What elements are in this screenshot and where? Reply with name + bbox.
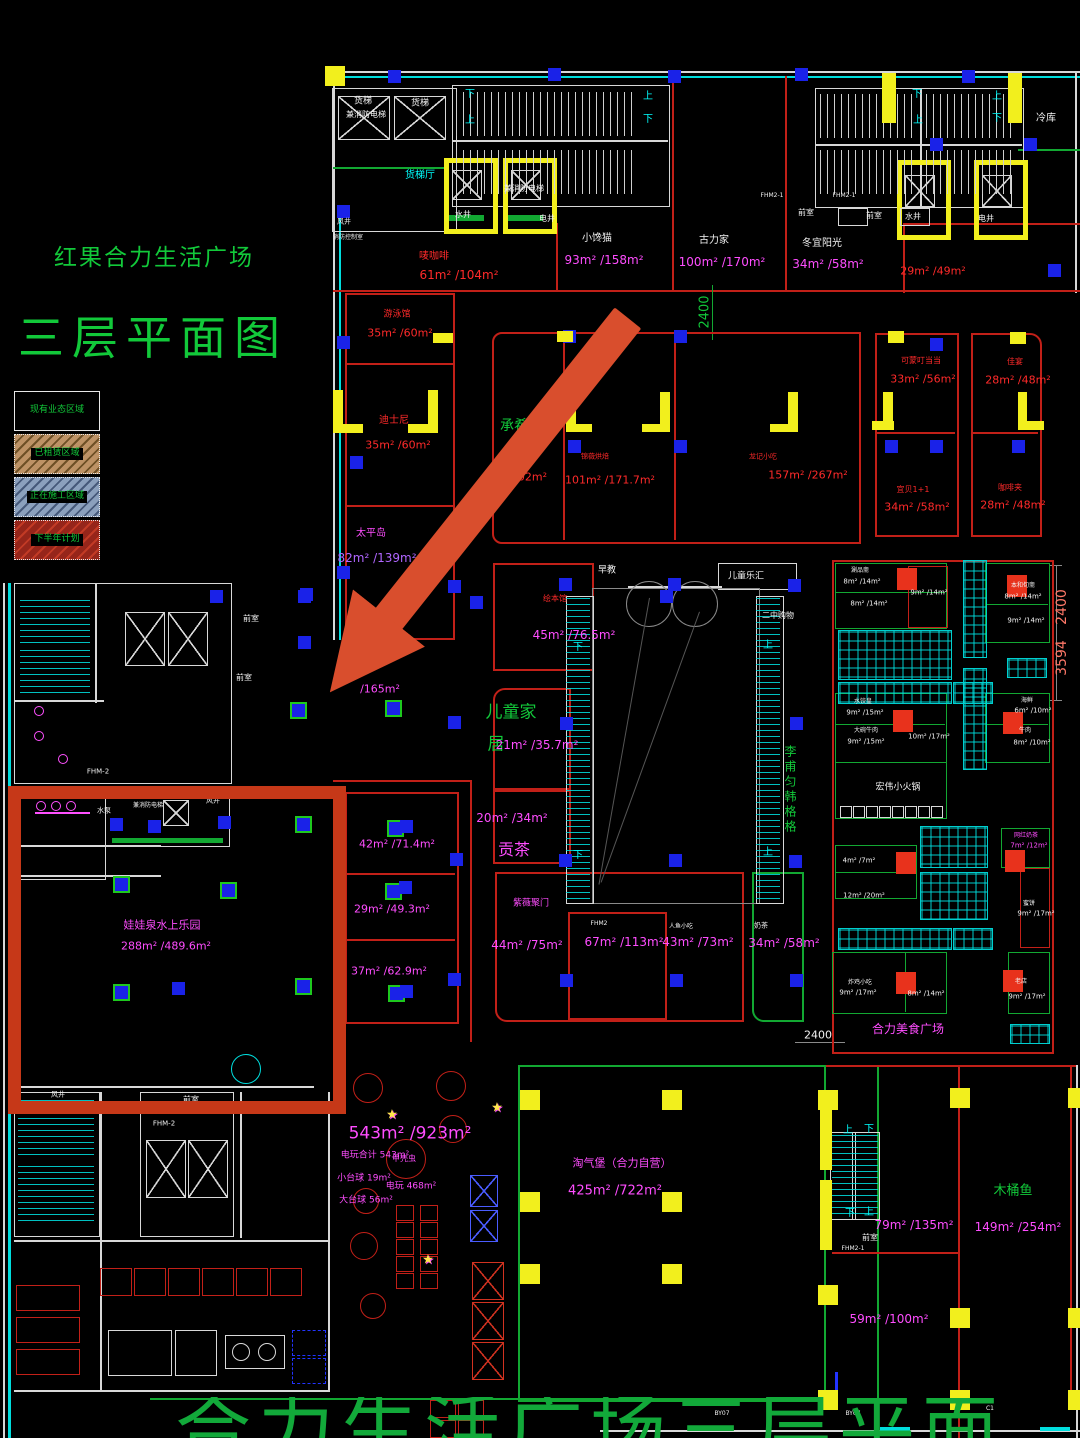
- plan-label: 李甫匀韩格格: [784, 745, 796, 835]
- dining-table-icon: [838, 928, 952, 950]
- plan-label: 太平岛: [356, 529, 386, 539]
- wall-highlight-bar: [642, 424, 670, 432]
- room-outline: [16, 1285, 80, 1311]
- plan-label: 29m² /49m²: [900, 266, 965, 277]
- plan-label: 425m² /722m²: [568, 1185, 662, 1198]
- stair-treads-icon: [926, 94, 1016, 138]
- wall-line: [345, 293, 455, 295]
- elevator-shaft-icon: [168, 612, 208, 666]
- wall-line: [345, 505, 455, 507]
- column-square-icon: [1068, 1088, 1080, 1108]
- wall-line: [1075, 73, 1077, 293]
- plan-label: FHM2: [591, 921, 608, 927]
- dining-table-icon: [920, 872, 988, 920]
- column-square-icon: [662, 1192, 682, 1212]
- column-circle-icon: [58, 754, 68, 764]
- plan-label: 101m² /171.7m²: [565, 475, 655, 486]
- room-outline: [918, 806, 930, 818]
- column-square-icon: [520, 1192, 540, 1212]
- plan-label: 下: [864, 1125, 874, 1135]
- column-square-icon: [950, 1088, 970, 1108]
- stall-counter-icon: [1005, 850, 1025, 872]
- plan-label: 10m² /17m²: [908, 734, 950, 741]
- stall-counter-icon: [893, 710, 913, 732]
- leg-planned-label: 下半年计划: [31, 534, 82, 546]
- plan-label: 游泳馆: [383, 311, 410, 320]
- plan-label: 老店: [1015, 979, 1027, 985]
- plan-label: 35m² /60m²: [365, 440, 430, 451]
- sprinkler-square-icon: [670, 974, 683, 987]
- star-icon: ★: [386, 1109, 398, 1122]
- plan-label: 8m² /14m²: [1004, 594, 1041, 601]
- room-outline: [840, 806, 852, 818]
- wall-highlight-bar: [566, 424, 592, 432]
- sprinkler-square-icon: [930, 138, 943, 151]
- stall-counter-icon: [897, 568, 917, 590]
- room-outline: [396, 1256, 414, 1272]
- plan-label: 12m² /20m²: [843, 893, 885, 900]
- sprinkler-square-icon: [337, 205, 350, 218]
- room-outline: [16, 1349, 80, 1375]
- room-outline: [396, 1222, 414, 1238]
- column-square-icon: [325, 66, 345, 86]
- plan-label: 上: [843, 1126, 853, 1136]
- room-outline: [420, 1205, 438, 1221]
- room-outline: [396, 1239, 414, 1255]
- plan-label: FHM2-1: [842, 1246, 865, 1252]
- room-outline: [879, 806, 891, 818]
- dining-table-icon: [838, 630, 952, 680]
- plan-label: 9m² /17m²: [839, 990, 876, 997]
- dining-table-icon: [953, 928, 993, 950]
- room-outline: [202, 1268, 234, 1296]
- room-outline: [100, 1268, 132, 1296]
- plan-label: 35m² /60m²: [367, 328, 432, 339]
- wall-line: [100, 1092, 102, 1392]
- leg-existing-label: 现有业态区域: [27, 405, 87, 417]
- project-title: 红果合力生活广场: [54, 238, 254, 272]
- plan-label: 本和旬斋: [1011, 583, 1035, 589]
- elevator-shaft-icon: [125, 612, 165, 666]
- plan-label: 8m² /14m²: [907, 991, 944, 998]
- room-outline: [853, 806, 865, 818]
- plan-label: 海鲜: [1021, 698, 1033, 704]
- plan-label: 蜜饼: [1023, 901, 1035, 907]
- sprinkler-square-icon: [788, 579, 801, 592]
- plan-label: 古力家: [699, 236, 729, 246]
- wall-line: [470, 780, 472, 1042]
- plan-label: 淘气堡（合力自营）: [573, 1158, 672, 1169]
- sprinkler-square-icon: [674, 440, 687, 453]
- plan-label: 93m² /158m²: [564, 254, 643, 266]
- room-outline: [175, 1330, 217, 1376]
- room-outline: [518, 1065, 826, 1402]
- plan-label: 45m² /76.5m²: [533, 629, 616, 641]
- plan-label: 前室: [243, 615, 259, 623]
- sprinkler-square-icon: [298, 590, 311, 603]
- plan-label: 水井: [905, 213, 921, 221]
- plan-label: 儿童乐汇: [728, 573, 764, 582]
- column-square-icon: [1068, 1308, 1080, 1328]
- sprinkler-square-icon: [795, 68, 808, 81]
- escalator-icon: [18, 1166, 94, 1224]
- sprinkler-square-icon: [337, 336, 350, 349]
- plan-label: 2400: [1055, 589, 1069, 625]
- plan-label: FHM2-1: [761, 193, 784, 199]
- wall-line: [672, 76, 674, 290]
- plan-label: 8m² /14m²: [843, 579, 880, 586]
- sprinkler-square-icon: [350, 456, 363, 469]
- stair-treads-icon: [456, 92, 636, 136]
- wall-line: [333, 780, 470, 782]
- plan-label: 货梯厅: [405, 171, 435, 181]
- room-outline: [16, 1317, 80, 1343]
- star-icon: ★: [491, 1102, 503, 1115]
- plan-label: 9m² /17m²: [1017, 911, 1054, 918]
- star-icon: ★: [422, 1254, 434, 1267]
- elevator-shaft-icon: [188, 1140, 228, 1198]
- room-outline: [892, 806, 904, 818]
- sprinkler-square-icon: [400, 985, 413, 998]
- leg-construction-swatch: 正在施工区域: [14, 477, 100, 517]
- sprinkler-square-icon: [210, 590, 223, 603]
- column-circle-icon: [258, 1343, 276, 1361]
- room-outline: [270, 1268, 302, 1296]
- plan-label: 奶茶: [754, 923, 768, 930]
- plan-label: 下: [465, 90, 475, 100]
- room-outline: [236, 1268, 268, 1296]
- sprinkler-square-icon: [388, 70, 401, 83]
- sprinkler-square-icon: [470, 596, 483, 609]
- wall-highlight-bar: [333, 424, 363, 433]
- column-circle-icon: [232, 1343, 250, 1361]
- wall-highlight-bar: [820, 1180, 832, 1250]
- escalator-icon: [832, 1135, 878, 1215]
- sprinkler-square-icon: [790, 717, 803, 730]
- wall-highlight-bar: [882, 73, 896, 123]
- wall-highlight-bar: [408, 424, 438, 433]
- plan-label: 79m² /135m²: [874, 1219, 953, 1231]
- sprinkler-square-icon: [560, 974, 573, 987]
- leg-planned-swatch: 下半年计划: [14, 520, 100, 560]
- wall-highlight-bar: [1018, 421, 1044, 430]
- room-outline: [866, 806, 878, 818]
- room-outline: [568, 912, 667, 1020]
- equipment-icon: [472, 1302, 504, 1340]
- wall-highlight-bar: [557, 331, 573, 342]
- plan-label: 小馋猫: [582, 234, 612, 244]
- plan-label: 67m² /113m²: [584, 936, 663, 948]
- plan-label: 37m² /62.9m²: [351, 966, 427, 977]
- plan-label: 网红奶茶: [1014, 833, 1038, 839]
- room-outline: [168, 1268, 200, 1296]
- plan-label: 人鱼小吃: [669, 924, 693, 930]
- dining-table-icon: [963, 560, 987, 658]
- plan-label: 木桶鱼: [993, 1185, 1032, 1198]
- stair-treads-icon: [456, 150, 636, 194]
- dining-table-icon: [920, 826, 988, 868]
- dining-table-icon: [953, 682, 993, 704]
- plan-label: 货梯: [411, 100, 429, 109]
- plan-label: 9m² /14m²: [1007, 618, 1044, 625]
- plan-label: /165m²: [360, 684, 400, 695]
- plan-label: 33m² /56m²: [890, 374, 955, 385]
- plan-label: 大台球 56m²: [339, 1197, 393, 1206]
- column-square-icon: [520, 1264, 540, 1284]
- floor-plan-title: 三层平面图: [18, 302, 288, 368]
- plan-label: 大碗牛肉: [854, 728, 878, 734]
- plan-label: 下: [573, 643, 583, 653]
- room-outline: [396, 1205, 414, 1221]
- wall-line: [14, 1240, 330, 1242]
- plan-label: 电井: [978, 215, 994, 223]
- column-circle-icon: [626, 581, 672, 627]
- sprinkler-square-icon: [560, 717, 573, 730]
- bottom-clipped-title: 合力生活广场三层平面图: [175, 1397, 1075, 1438]
- plan-label: 炸鸡小吃: [848, 980, 872, 986]
- plan-label: 冷库: [1036, 114, 1056, 124]
- column-circle-icon: [436, 1071, 466, 1101]
- plan-label: 34m² /58m²: [792, 258, 863, 270]
- sprinkler-square-icon: [298, 636, 311, 649]
- wall-highlight-bar: [872, 421, 894, 430]
- column-square-icon: [818, 1285, 838, 1305]
- sprinkler-square-icon: [789, 855, 802, 868]
- plan-label: 小台球 19m²: [337, 1175, 391, 1184]
- plan-label: 157m² /267m²: [768, 470, 847, 481]
- column-circle-icon: [34, 731, 44, 741]
- sprinkler-square-icon: [450, 853, 463, 866]
- dining-table-icon: [1007, 658, 1047, 678]
- sprinkler-square-icon: [559, 578, 572, 591]
- plan-label: 34m² /58m²: [884, 502, 949, 513]
- wall-highlight-bar: [820, 1100, 832, 1170]
- wall-line: [333, 290, 1080, 292]
- column-square-icon: [520, 1090, 540, 1110]
- machine-icon: [470, 1210, 498, 1242]
- plan-label: 可蒙叮当当: [901, 357, 941, 365]
- equipment-icon: [472, 1342, 504, 1380]
- elevator-shaft-icon: [146, 1140, 186, 1198]
- sprinkler-square-icon: [962, 70, 975, 83]
- room-outline: [108, 1330, 172, 1376]
- plan-label: 下: [573, 851, 583, 861]
- sprinkler-square-icon: [660, 590, 673, 603]
- plan-label: 下: [845, 1209, 855, 1219]
- plan-label: 上: [913, 116, 923, 126]
- plan-label: 唛咖啡: [419, 252, 449, 262]
- plan-label: 前室: [798, 209, 814, 217]
- plan-label: 前室: [862, 1234, 878, 1242]
- sprinkler-square-icon: [885, 440, 898, 453]
- plan-label: 上: [465, 116, 475, 126]
- leg-existing-swatch: 现有业态区域: [14, 391, 100, 431]
- equipment-icon: [472, 1262, 504, 1300]
- plan-label: 前室: [866, 212, 882, 220]
- plan-label: 下: [912, 90, 922, 100]
- sprinkler-square-icon: [668, 578, 681, 591]
- sprinkler-square-icon: [385, 700, 402, 717]
- plan-label: 4m² /7m²: [843, 858, 876, 865]
- sprinkler-square-icon: [568, 440, 581, 453]
- wall-line: [785, 76, 787, 290]
- sprinkler-square-icon: [448, 716, 461, 729]
- escalator-icon: [20, 650, 90, 694]
- plan-label: FHM-2: [87, 769, 109, 776]
- plan-label: 7m² /12m²: [1010, 843, 1047, 850]
- sprinkler-square-icon: [1048, 264, 1061, 277]
- machine-icon: [470, 1175, 498, 1207]
- leg-leased-label: 已租赁区域: [31, 448, 82, 460]
- plan-label: 上: [864, 1208, 874, 1218]
- plan-label: FHM-2: [153, 1121, 175, 1128]
- sprinkler-square-icon: [448, 973, 461, 986]
- wall-highlight-bar: [888, 331, 904, 343]
- sprinkler-square-icon: [674, 330, 687, 343]
- stair-treads-icon: [820, 150, 912, 194]
- plan-label: 34m² /58m²: [748, 937, 819, 949]
- plan-label: 贡茶: [498, 842, 530, 858]
- plan-label: 8m² /10m²: [1013, 740, 1050, 747]
- plan-label: 9m² /17m²: [1008, 994, 1045, 1001]
- room-outline: [838, 208, 868, 226]
- plan-label: 电井: [539, 215, 555, 223]
- plan-label: 543m² /923m²: [349, 1126, 472, 1143]
- bottom-clipped-title-text: 合力生活广场三层平面图: [175, 1397, 1075, 1438]
- plan-label: 61m² /104m²: [419, 269, 498, 281]
- sprinkler-square-icon: [559, 854, 572, 867]
- plan-label: 锦薇烘焙: [581, 454, 609, 461]
- plan-label: 宜贝1+1: [897, 486, 930, 494]
- leg-construction-label: 正在施工区域: [27, 491, 87, 503]
- plan-label: 龙记小吃: [749, 454, 777, 461]
- plan-label: 100m² /170m²: [679, 256, 766, 268]
- stall-counter-icon: [896, 852, 916, 874]
- sprinkler-square-icon: [1012, 440, 1025, 453]
- plan-label: 29m² /49.3m²: [354, 904, 430, 915]
- room-outline: [396, 1273, 414, 1289]
- plan-label: 21m² /35.7m²: [496, 739, 579, 751]
- room-outline: [134, 1268, 166, 1296]
- room-outline: [905, 806, 917, 818]
- column-square-icon: [950, 1308, 970, 1328]
- plan-label: 风井: [337, 219, 351, 226]
- wall-highlight-bar: [770, 424, 798, 432]
- room-outline: [292, 1330, 326, 1356]
- wall-line: [1056, 565, 1057, 700]
- plan-label: 下: [643, 115, 653, 125]
- plan-label: 9m² /15m²: [846, 710, 883, 717]
- plan-label: 甲壳虫: [392, 1155, 416, 1163]
- plan-label: 28m² /48m²: [985, 375, 1050, 386]
- plan-label: 儿童家: [486, 705, 537, 722]
- column-square-icon: [662, 1090, 682, 1110]
- room-outline: [1020, 868, 1050, 948]
- room-outline: [292, 1358, 326, 1384]
- wall-line: [328, 1092, 330, 1392]
- room-outline: [931, 806, 943, 818]
- cad-floorplan-canvas: 红果合力生活广场 三层平面图 现有业态区域 已租赁区域 正在施工区域 下半年计划…: [0, 0, 1080, 1438]
- plan-label: 紫薇聚门: [513, 900, 549, 909]
- plan-label: 绘本馆: [543, 595, 567, 603]
- plan-label: 佳宴: [1007, 358, 1023, 366]
- plan-label: 消防控制室: [333, 235, 363, 241]
- plan-label: 9m² /14m²: [910, 590, 947, 597]
- wall-highlight-bar: [1008, 73, 1022, 123]
- plan-label: 前室: [236, 674, 252, 682]
- column-square-icon: [662, 1264, 682, 1284]
- plan-label: 迪士尼: [379, 416, 409, 426]
- plan-label: 货梯: [354, 98, 372, 107]
- wall-line: [822, 1065, 1078, 1067]
- plan-label: 二中购物: [762, 612, 794, 620]
- plan-label: 涮品斋: [851, 568, 869, 574]
- plan-label: 兼消防电梯: [504, 185, 544, 193]
- plan-label: 42m² /71.4m²: [359, 839, 435, 850]
- plan-label: 3594: [1055, 640, 1069, 676]
- plan-label: 合力美食广场: [872, 1023, 944, 1035]
- plan-label: 8m² /14m²: [850, 601, 887, 608]
- sprinkler-square-icon: [669, 854, 682, 867]
- wall-line: [14, 1390, 330, 1392]
- plan-label: 咖啡夹: [998, 484, 1022, 492]
- wall-line: [832, 1252, 960, 1254]
- plan-label: 上: [763, 848, 773, 858]
- plan-label: 59m² /100m²: [849, 1313, 928, 1325]
- wall-line: [345, 363, 455, 365]
- plan-label: 电玩 468m²: [386, 1183, 436, 1192]
- plan-label: 2400: [804, 1030, 832, 1041]
- plan-label: 43m² /73m²: [662, 936, 733, 948]
- plan-label: 牛肉: [1019, 728, 1031, 734]
- plan-label: 2400: [699, 295, 712, 328]
- plan-label: 149m² /254m²: [975, 1221, 1062, 1233]
- plan-label: 冬宜阳光: [802, 239, 842, 249]
- plan-label: 82m² /139m²: [337, 552, 416, 564]
- sprinkler-square-icon: [399, 881, 412, 894]
- plan-label: 宏伟小火锅: [875, 784, 920, 793]
- plan-label: 水井: [455, 211, 471, 219]
- room-outline: [420, 1273, 438, 1289]
- wall-line: [1076, 1065, 1078, 1438]
- plan-label: 9m² /15m²: [847, 739, 884, 746]
- sprinkler-square-icon: [930, 338, 943, 351]
- sprinkler-square-icon: [1024, 138, 1037, 151]
- sprinkler-square-icon: [930, 440, 943, 453]
- plan-label: 28m² /48m²: [980, 500, 1045, 511]
- column-circle-icon: [34, 706, 44, 716]
- plan-label: 水饺皇: [854, 699, 872, 705]
- sprinkler-square-icon: [668, 70, 681, 83]
- sprinkler-square-icon: [448, 580, 461, 593]
- highlight-rectangle-annotation: [8, 786, 346, 1114]
- wall-highlight-bar: [433, 333, 453, 343]
- plan-label: 上: [763, 641, 773, 651]
- plan-label: 兼消防电梯: [346, 111, 386, 119]
- sprinkler-square-icon: [548, 68, 561, 81]
- sprinkler-square-icon: [790, 974, 803, 987]
- escalator-icon: [20, 600, 90, 644]
- plan-label: 早教: [598, 567, 616, 576]
- sprinkler-square-icon: [290, 702, 307, 719]
- sprinkler-square-icon: [400, 820, 413, 833]
- column-circle-icon: [350, 1232, 378, 1260]
- wall-line: [1070, 1065, 1072, 1395]
- stair-treads-icon: [926, 150, 1016, 194]
- column-circle-icon: [353, 1073, 383, 1103]
- wall-line: [3, 583, 5, 1438]
- plan-label: 20m² /34m²: [476, 812, 547, 824]
